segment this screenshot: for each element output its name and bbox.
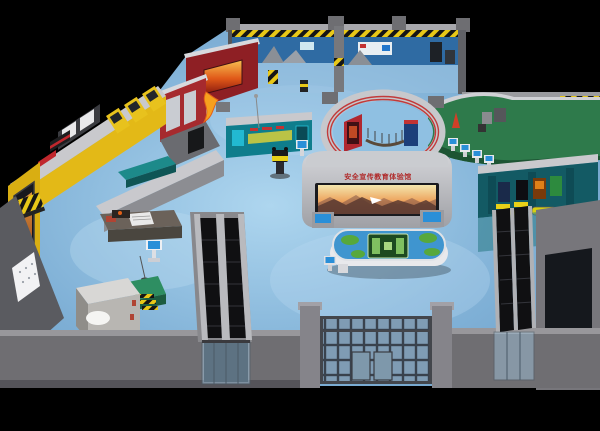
wall-pillar-block	[216, 102, 230, 112]
poster-dark	[498, 182, 510, 202]
entrance-door	[352, 352, 370, 380]
hall-scene-svg: 安全宣传教育体验馆	[0, 0, 600, 431]
escalator-entry-strip	[496, 204, 510, 209]
flanking-kiosk	[420, 210, 444, 227]
wall-poster	[300, 42, 314, 50]
teal-exhibit-booth	[226, 112, 312, 158]
disaster-sand-table	[100, 210, 182, 242]
striped-steps	[138, 294, 154, 298]
escalator-entry-strip	[514, 202, 528, 207]
entrance-pillar	[300, 306, 320, 388]
poster-green	[550, 176, 562, 196]
room-divider-pillar	[334, 26, 344, 92]
blue-room-right	[344, 30, 466, 94]
hazard-stripe-band	[344, 30, 462, 37]
entrance-door	[374, 352, 392, 380]
exhibition-hall-render: 安全宣传教育体验馆	[0, 0, 600, 431]
flanking-kiosk	[312, 212, 334, 228]
glow-panel	[232, 130, 244, 146]
poster-black	[516, 180, 528, 200]
escalator-right	[492, 202, 536, 380]
stairwell-opening	[545, 248, 592, 342]
exhibit-equipment	[482, 112, 492, 124]
led-wall-signage-text: 安全宣传教育体验馆	[344, 172, 412, 181]
world-map-table	[324, 230, 451, 279]
hazard-kiosk	[268, 70, 278, 84]
table-leg	[338, 264, 348, 273]
exhibit-equipment	[430, 42, 442, 62]
elevator-door	[184, 90, 196, 125]
elevator-door	[166, 95, 180, 132]
central-led-monolith: 安全宣传教育体验馆	[302, 151, 452, 228]
oval-highlight	[86, 311, 110, 325]
display-case	[296, 126, 308, 142]
hazard-stripe-band	[232, 30, 334, 37]
entrance-pillar	[432, 306, 452, 388]
glass-railing	[494, 332, 534, 380]
ring-pillar	[322, 92, 338, 104]
